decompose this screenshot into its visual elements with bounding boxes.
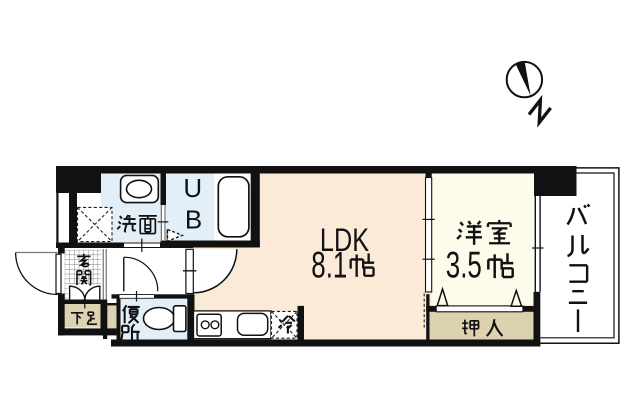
- svg-text:B: B: [185, 204, 202, 234]
- svg-text:3.5: 3.5: [446, 244, 482, 286]
- svg-text:U: U: [183, 173, 202, 203]
- svg-text:8.1: 8.1: [311, 244, 347, 286]
